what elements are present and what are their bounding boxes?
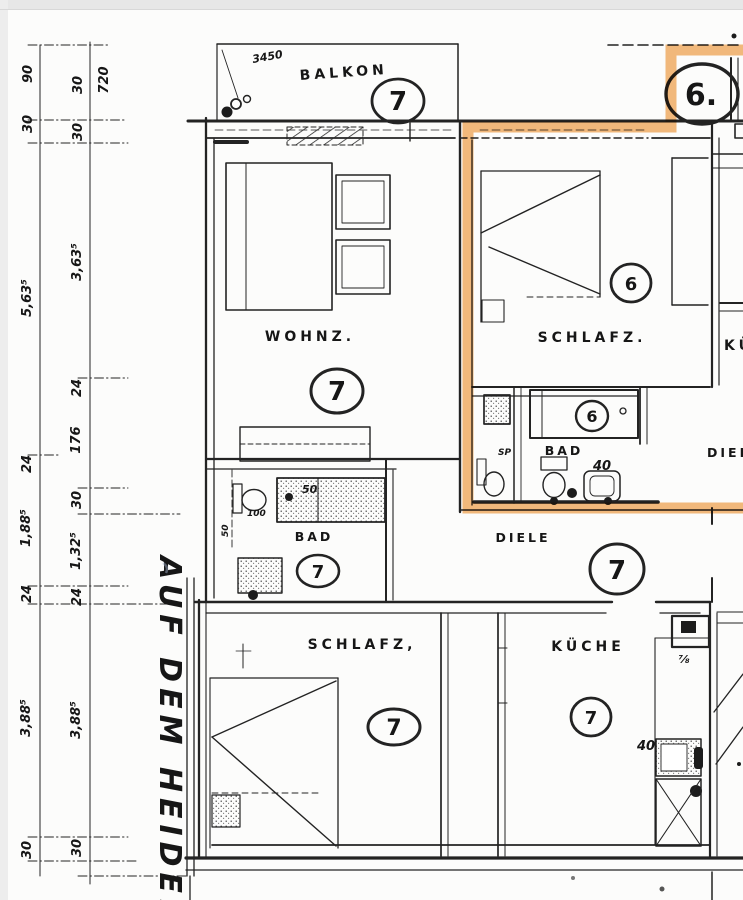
- dim-inner-9: 30: [70, 839, 85, 857]
- shower: [238, 558, 282, 593]
- kueche7-label: KÜCHE: [551, 637, 625, 655]
- kueche7-dim-sink: 40: [636, 739, 655, 754]
- dim-outer-4: 1,88⁵: [19, 509, 34, 547]
- bad7-label: BAD: [295, 529, 334, 544]
- dim-outer-5: 24: [20, 585, 35, 603]
- drain: [248, 590, 258, 600]
- dim-outer-6: 3,88⁵: [19, 699, 34, 737]
- bad7-dim-side: 50: [221, 524, 231, 537]
- schlafz7-label: SCHLAFZ,: [308, 637, 417, 653]
- dim-inner-5: 30: [70, 491, 85, 509]
- dim-inner-8: 3,88⁵: [69, 701, 84, 739]
- unit-6-number-bad: 6: [586, 407, 597, 426]
- bad7-dim-tub: 50: [302, 483, 318, 496]
- scanned-floorplan-page: 90 30 5,63⁵ 24 1,88⁵ 24 3,88⁵ 30 30 30 3…: [0, 0, 743, 900]
- balcony-door-sill: [287, 127, 363, 145]
- bad7-dim-wc: 100: [247, 509, 266, 519]
- bathtub: [277, 478, 385, 522]
- faucet: [694, 747, 703, 769]
- diele7-label: DIELE: [495, 530, 550, 545]
- dim-outer-3: 24: [20, 455, 35, 473]
- kueche6-label: KÜCHE: [724, 336, 743, 354]
- dim-inner-0: 30: [71, 76, 86, 94]
- bad6-label: BAD: [545, 443, 584, 458]
- wohnzimmer-label: WOHNZ.: [265, 329, 355, 345]
- dim-inner-1: 30: [71, 123, 86, 141]
- unit-6-badge: 6.: [685, 78, 717, 113]
- diele6-label: DIELE: [707, 445, 743, 460]
- street-name-label: AUF DEM HEIDENBE: [152, 554, 187, 900]
- dim-outer-7: 30: [20, 841, 35, 859]
- shaft-box: [484, 395, 510, 424]
- schlafz6-label: SCHLAFZ.: [538, 330, 647, 346]
- unit-6-number-schlafz: 6: [625, 274, 638, 295]
- dim-outer-1: 30: [21, 115, 36, 133]
- floor-plan-canvas: 90 30 5,63⁵ 24 1,88⁵ 24 3,88⁵ 30 30 30 3…: [0, 0, 743, 900]
- unit-7-number-bad: 7: [312, 562, 325, 583]
- unit-7-number-wohnz: 7: [328, 377, 346, 407]
- unit-7-number-schlafz: 7: [386, 716, 401, 741]
- dim-inner-7: 24: [70, 588, 85, 606]
- page-edge: [0, 0, 743, 900]
- dim-inner-6: 1,32⁵: [69, 532, 84, 570]
- dim-inner-2: 3,63⁵: [70, 243, 85, 281]
- dim-inner-4: 176: [69, 426, 84, 453]
- dim-outer-0: 90: [21, 65, 36, 83]
- dim-inner-3: 24: [70, 379, 85, 397]
- unit-7-number-kueche: 7: [585, 708, 598, 729]
- faucet: [285, 493, 293, 501]
- dim-outer-2: 5,63⁵: [20, 279, 35, 317]
- bad6-shaft-mark: SP: [498, 448, 511, 458]
- kueche7-shaft-mark: ⅞: [678, 653, 690, 666]
- dim-total-width: 720: [97, 66, 112, 93]
- nightstand: [212, 795, 240, 827]
- unit-7-number-diele: 7: [608, 556, 626, 586]
- unit-7-number-balkon: 7: [389, 87, 407, 117]
